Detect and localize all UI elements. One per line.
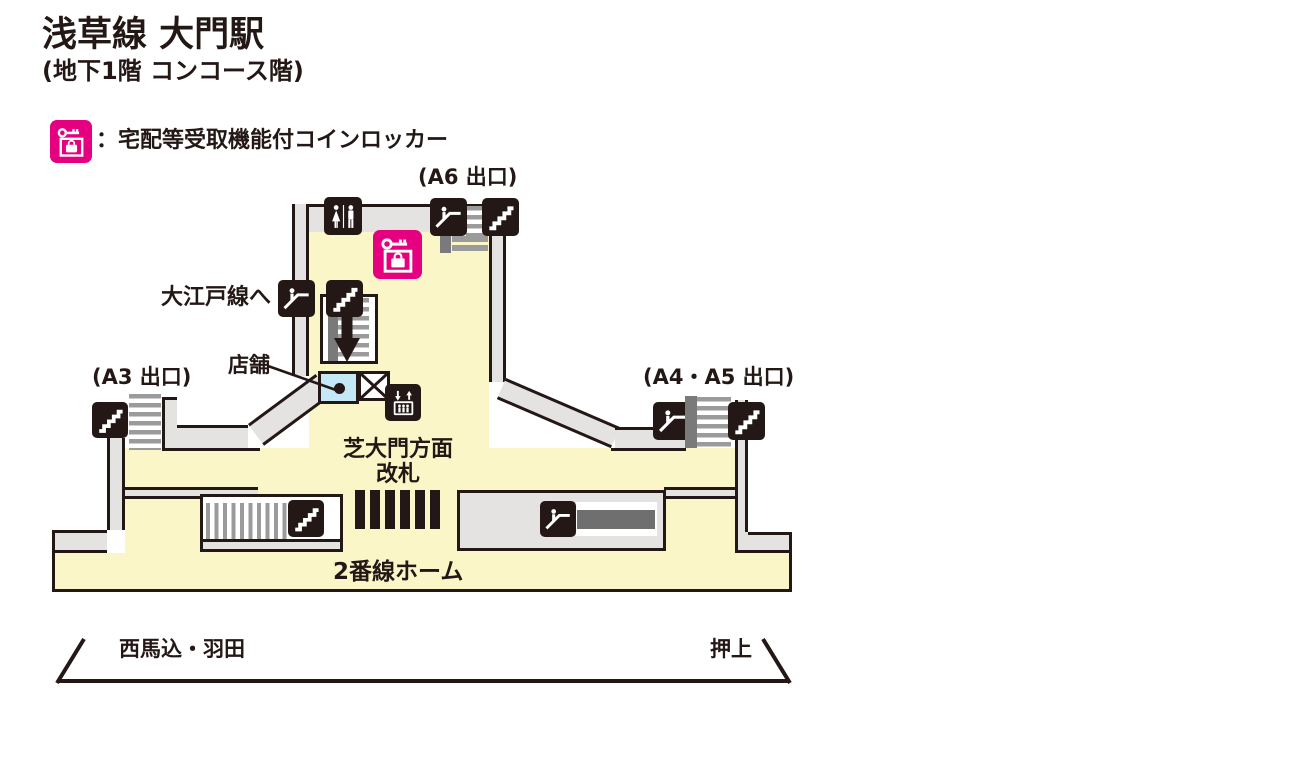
a45-stairs-icon bbox=[728, 402, 765, 440]
a6-stair-tread2 bbox=[452, 245, 488, 251]
gate-label-line2: 改札 bbox=[335, 463, 461, 488]
wall-a3-baseline bbox=[162, 448, 260, 451]
oedo-stairs-icon bbox=[326, 280, 363, 317]
ticket-gates bbox=[355, 490, 447, 529]
direction-right-label: 押上 bbox=[710, 638, 752, 662]
exit-a3-label: (A3 出口) bbox=[92, 366, 191, 390]
a45-stair-rail bbox=[685, 396, 697, 448]
wall-a3-band bbox=[177, 425, 248, 448]
a6-stairs-icon bbox=[482, 198, 519, 236]
coin-locker-icon bbox=[50, 120, 92, 163]
page-subtitle: (地下1階 コンコース階) bbox=[42, 58, 304, 85]
oedo-line-label: 大江戸線へ bbox=[161, 286, 271, 311]
platform-label: 2番線ホーム bbox=[333, 560, 463, 586]
toilet-icon bbox=[324, 197, 362, 235]
page-title: 浅草線 大門駅 bbox=[42, 16, 264, 55]
platform-edge-left bbox=[52, 553, 55, 592]
a45-stairway-stripes bbox=[697, 397, 731, 447]
wall-east-corner-topline bbox=[748, 532, 792, 535]
shop-label: 店舗 bbox=[228, 354, 270, 378]
gate-bar bbox=[415, 490, 425, 529]
platform-edge-bottom bbox=[52, 589, 792, 592]
legend-label: ：宅配等受取機能付コインロッカー bbox=[96, 129, 448, 154]
wall-a45-baseline bbox=[611, 448, 686, 451]
gate-bar bbox=[355, 490, 365, 529]
platform-escalator-icon bbox=[540, 501, 576, 537]
platform-stairs-icon bbox=[288, 500, 324, 537]
a6-escalator-icon bbox=[430, 198, 467, 236]
wall-a3-stub bbox=[162, 397, 177, 448]
platform-escalator-belt bbox=[577, 510, 655, 529]
a3-stairway-stripes bbox=[129, 394, 161, 450]
wall-diagonal-right bbox=[497, 378, 620, 448]
exit-a6-label: (A6 出口) bbox=[418, 166, 517, 190]
gate-bar bbox=[385, 490, 395, 529]
elevator-icon bbox=[385, 384, 421, 421]
wall-band-right bbox=[664, 487, 735, 499]
gate-bar bbox=[430, 490, 440, 529]
platform-edge-right bbox=[789, 553, 792, 592]
gate-label: 芝大門方面 改札 bbox=[335, 438, 461, 487]
gate-bar bbox=[400, 490, 410, 529]
exit-a4-a5-label: (A4・A5 出口) bbox=[643, 366, 794, 390]
wall-west-vertical bbox=[107, 438, 125, 530]
a6-stair-tread1 bbox=[452, 236, 488, 242]
wall-west-corner bbox=[52, 530, 107, 553]
platform-stairway-stripes bbox=[206, 503, 289, 539]
gate-label-line1: 芝大門方面 bbox=[335, 438, 461, 463]
wall-east-corner bbox=[735, 532, 792, 553]
direction-left-label: 西馬込・羽田 bbox=[119, 638, 245, 662]
station-floor-map: 浅草線 大門駅 (地下1階 コンコース階) ：宅配等受取機能付コインロッカー bbox=[0, 0, 1300, 760]
a3-stairs-icon bbox=[92, 402, 128, 438]
platform-stair-landing bbox=[200, 542, 343, 552]
gate-bar bbox=[370, 490, 380, 529]
shop-pointer-line bbox=[266, 364, 338, 392]
coin-locker-map-icon bbox=[373, 230, 422, 279]
oedo-escalator-icon bbox=[278, 280, 315, 317]
